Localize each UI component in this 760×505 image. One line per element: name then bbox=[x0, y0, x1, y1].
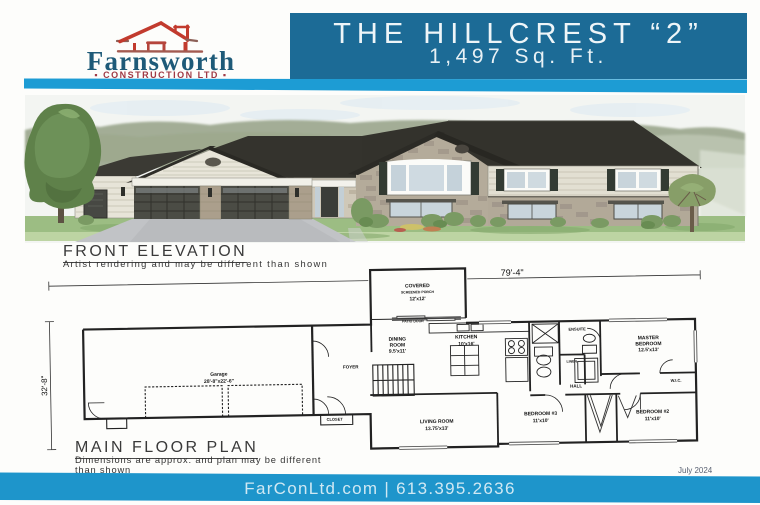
svg-text:28'-8"x22'-6": 28'-8"x22'-6" bbox=[204, 378, 235, 385]
svg-text:10'x16': 10'x16' bbox=[458, 341, 474, 347]
svg-text:FOYER: FOYER bbox=[343, 364, 359, 369]
svg-text:12'x12': 12'x12' bbox=[409, 296, 425, 302]
svg-text:Garage: Garage bbox=[210, 372, 228, 378]
svg-text:CLOSET: CLOSET bbox=[327, 417, 344, 422]
svg-text:BEDROOM #2: BEDROOM #2 bbox=[636, 409, 669, 416]
svg-text:9.5'x11': 9.5'x11' bbox=[389, 348, 407, 354]
svg-text:11'x10': 11'x10' bbox=[533, 418, 549, 424]
svg-text:FarConLtd.com | 613.395.2636: FarConLtd.com | 613.395.2636 bbox=[244, 479, 515, 498]
svg-text:HALL: HALL bbox=[570, 383, 582, 388]
svg-text:LINEN: LINEN bbox=[566, 359, 577, 363]
svg-text:KITCHEN: KITCHEN bbox=[455, 334, 478, 340]
svg-text:BEDROOM #3: BEDROOM #3 bbox=[524, 411, 557, 418]
svg-text:W.I.C.: W.I.C. bbox=[671, 378, 682, 383]
svg-text:ENSUITE: ENSUITE bbox=[568, 326, 586, 331]
svg-text:11'x10': 11'x10' bbox=[645, 416, 661, 422]
svg-text:PATIO DOOR: PATIO DOOR bbox=[402, 319, 424, 323]
svg-text:79'-4": 79'-4" bbox=[501, 267, 524, 277]
svg-text:COVERED: COVERED bbox=[405, 283, 430, 289]
svg-text:13.75'x13': 13.75'x13' bbox=[425, 426, 448, 432]
svg-text:12.5'x13': 12.5'x13' bbox=[638, 347, 659, 353]
svg-text:32'-8": 32'-8" bbox=[40, 375, 49, 396]
svg-text:LIVING ROOM: LIVING ROOM bbox=[420, 419, 454, 426]
svg-text:SCREENED PORCH: SCREENED PORCH bbox=[401, 290, 435, 295]
